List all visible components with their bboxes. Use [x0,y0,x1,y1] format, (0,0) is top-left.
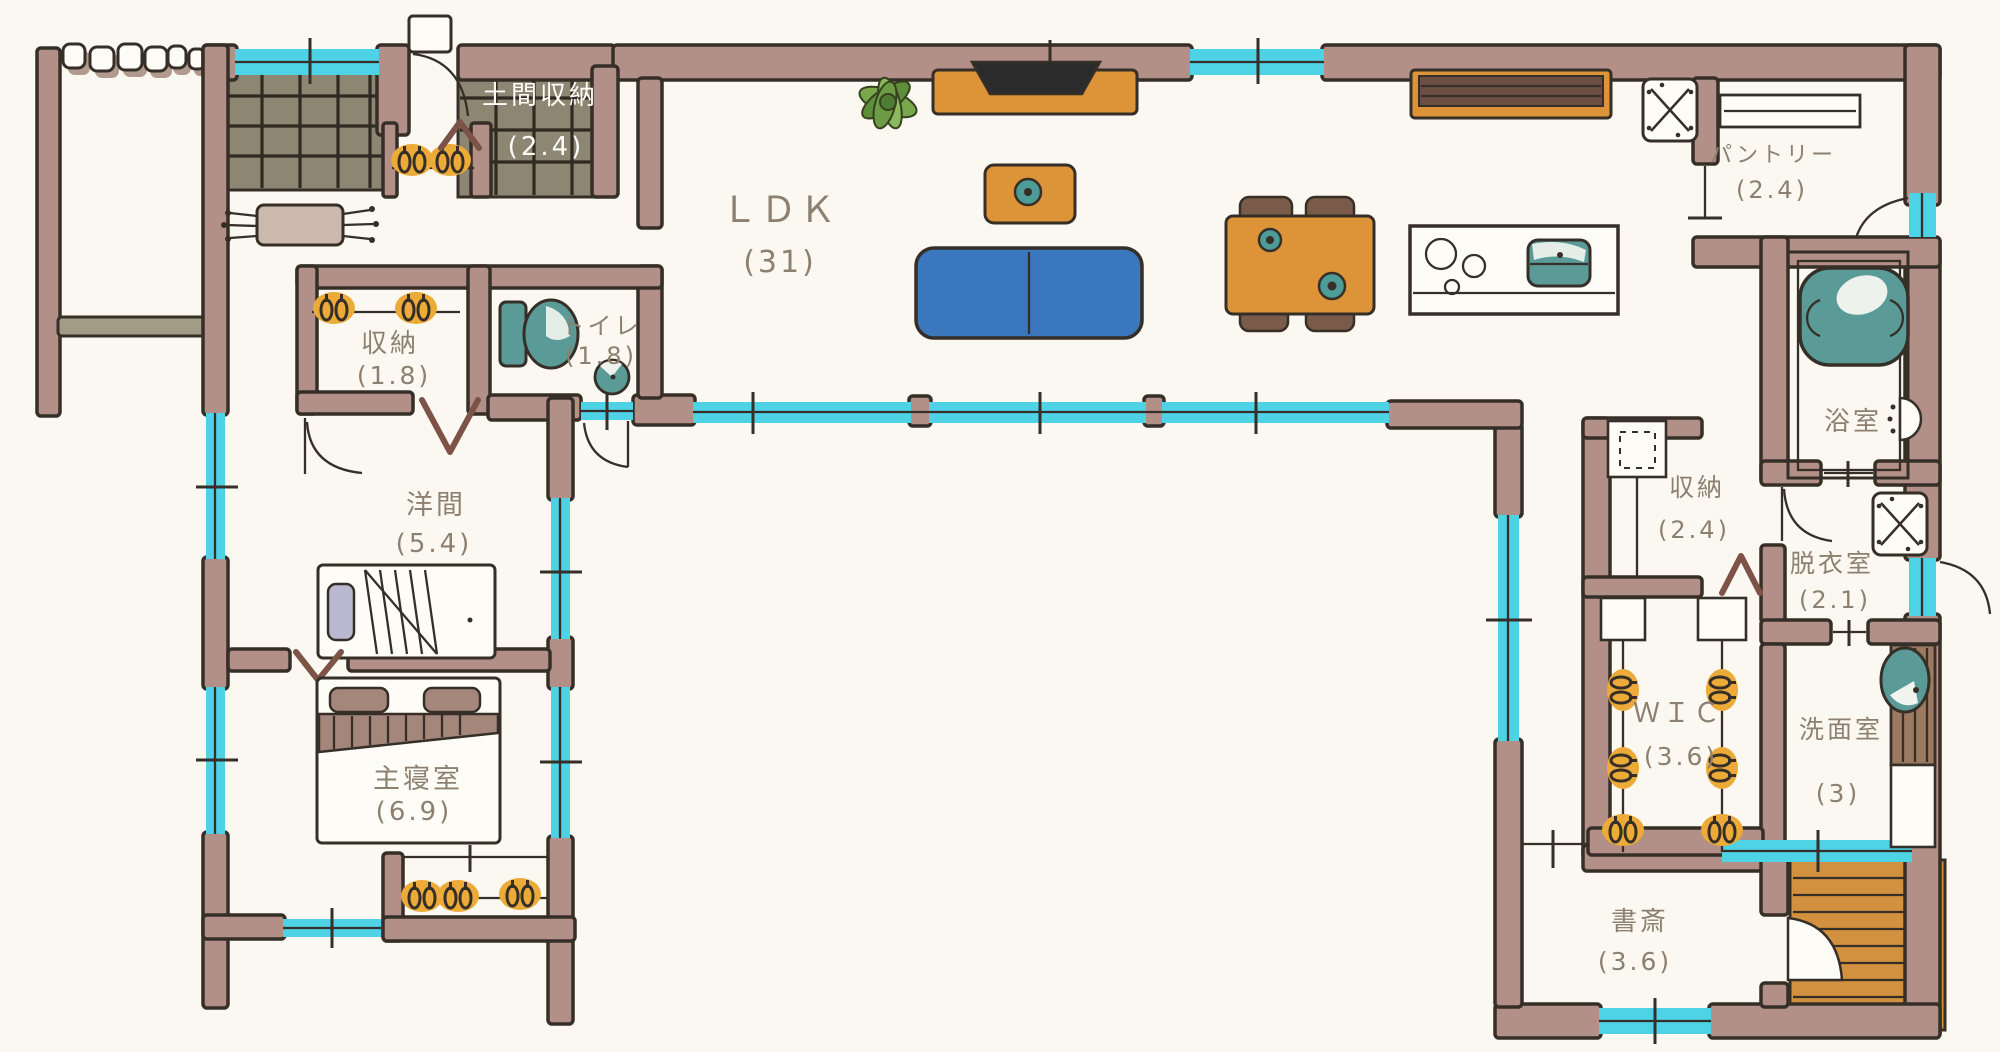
western-room-size: (5.4) [396,529,473,559]
master-bedroom-size: (6.9) [376,797,453,827]
toilet-tank [500,302,526,366]
door-arc [1784,489,1832,541]
floor-plan-drawing: 土間収納 (2.4) ＬＤＫ (31) 収納 (1.8) トイレ (1.8) 洋… [0,0,2000,1052]
pillow [330,688,388,712]
ldk-furniture [856,62,1697,338]
entry-closet-size: (1.8) [357,361,431,390]
hanger-icon [429,144,471,176]
dressing-room-size: (2.1) [1799,586,1871,614]
dressing-room-label: 脱衣室 [1790,549,1874,578]
bathtub [1800,268,1908,365]
western-room-label: 洋間 [406,490,466,521]
study-size: (3.6) [1598,947,1672,976]
genkan-bench [221,205,379,245]
entrance-step [58,317,208,336]
hanger-icon [391,144,433,176]
ldk-size: (31) [743,245,817,280]
pillow [424,688,480,712]
washroom [1881,645,1935,847]
washroom-label: 洗面室 [1799,715,1883,744]
pantry-size: (2.4) [1736,176,1808,204]
garden-fence-wall [37,48,60,416]
refrigerator-icon [1643,79,1697,141]
tv-board [933,62,1137,114]
hanger-icon [1607,747,1639,789]
hanger-icon [395,292,437,324]
bathroom [1788,252,1921,487]
wash-basin [1881,645,1935,847]
kitchen-cupboard [1411,70,1611,118]
hanger-icon [499,878,541,910]
wic-size: (3.6) [1644,742,1718,771]
master-bedroom-label: 主寝室 [373,764,463,795]
hall-closet-label: 収納 [1669,473,1725,502]
bathroom-label: 浴室 [1824,407,1882,437]
kitchen-island [1410,226,1618,314]
hanger-icon [313,292,355,324]
hanger-icon [1701,814,1743,846]
study-label: 書斎 [1611,907,1669,937]
toilet-label: トイレ [561,312,642,340]
toilet-size: (1.8) [565,342,637,370]
entry-closet-label: 収納 [361,329,419,359]
genkan-tile-floor [224,66,384,190]
coffee-table [985,165,1075,223]
dining-table [1226,216,1374,314]
hanger-icon [401,880,443,912]
ldk-label: ＬＤＫ [721,190,838,231]
pantry-label: パントリー [1710,143,1836,168]
tv [972,62,1100,94]
bedroom-closet [401,845,548,912]
single-bed [318,565,495,658]
floor-plan: 土間収納 (2.4) ＬＤＫ (31) 収納 (1.8) トイレ (1.8) 洋… [0,0,2000,1052]
approach-stepping-stones [63,44,210,78]
hall-closet [1608,421,1760,593]
doma-size: (2.4) [508,132,585,162]
wic-label: ＷＩＣ [1633,698,1723,729]
washing-machine-icon [1873,493,1927,555]
dining-set [1226,197,1374,331]
door-arc [307,422,362,473]
hall-closet-size: (2.4) [1658,516,1730,544]
houseplant [856,75,921,131]
washroom-size: (3) [1816,779,1860,808]
door-swing-marker [1722,556,1760,593]
pillow [328,584,354,640]
hanger-icon [437,880,479,912]
hanger-icon [1602,814,1644,846]
doma-label: 土間収納 [482,81,598,111]
